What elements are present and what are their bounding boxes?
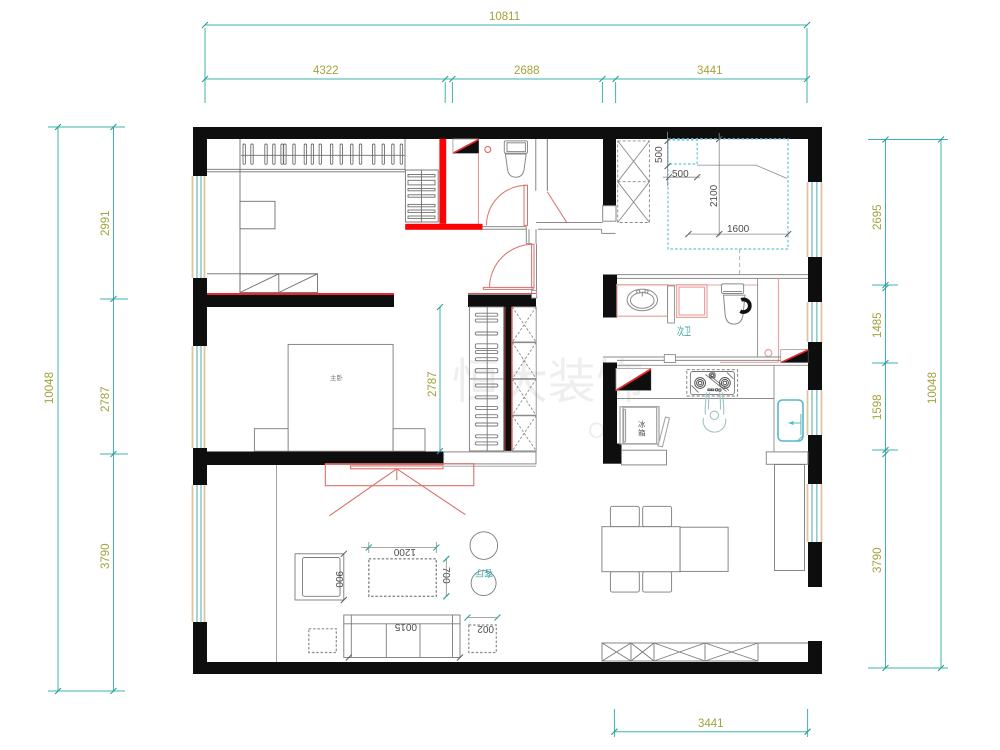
svg-text:900: 900	[333, 571, 344, 588]
svg-text:2787: 2787	[100, 386, 112, 412]
svg-text:2695: 2695	[872, 204, 884, 230]
svg-text:2991: 2991	[100, 210, 112, 236]
svg-text:主卧: 主卧	[330, 373, 344, 382]
svg-text:冰: 冰	[638, 419, 646, 429]
svg-text:2688: 2688	[514, 65, 540, 77]
svg-text:2787: 2787	[427, 371, 439, 397]
svg-text:1485: 1485	[872, 312, 884, 338]
svg-text:4322: 4322	[313, 65, 339, 77]
svg-text:次卫: 次卫	[677, 324, 691, 338]
svg-text:002: 002	[477, 623, 494, 634]
svg-text:500: 500	[654, 146, 665, 163]
svg-text:客厅: 客厅	[475, 568, 493, 579]
svg-text:10048: 10048	[44, 372, 56, 404]
svg-text:10811: 10811	[489, 11, 520, 23]
svg-text:3790: 3790	[872, 547, 884, 573]
svg-text:10048: 10048	[927, 372, 939, 404]
svg-text:0015: 0015	[394, 621, 417, 632]
svg-text:3441: 3441	[698, 718, 724, 730]
svg-text:700: 700	[440, 567, 451, 584]
svg-text:3441: 3441	[697, 65, 723, 77]
svg-text:1598: 1598	[872, 394, 884, 420]
svg-text:3790: 3790	[100, 543, 112, 569]
svg-text:2100: 2100	[709, 184, 720, 207]
svg-text:500: 500	[672, 169, 689, 180]
svg-text:1600: 1600	[727, 224, 750, 235]
svg-text:箱: 箱	[638, 428, 646, 438]
